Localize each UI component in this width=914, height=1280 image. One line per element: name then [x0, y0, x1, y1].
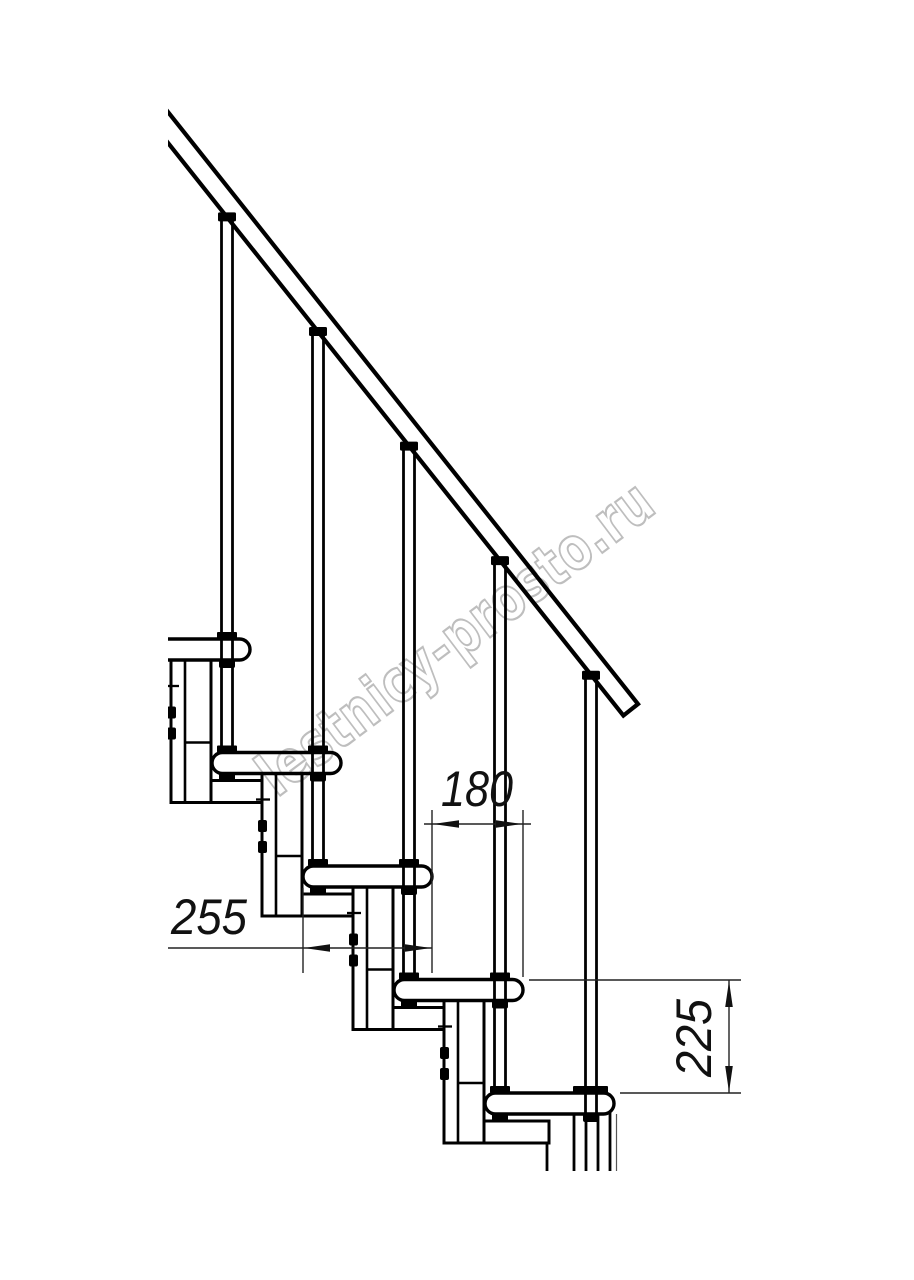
clamp-bolt: [349, 955, 358, 967]
tread-4: [394, 980, 523, 1001]
under-tread-nut: [310, 886, 326, 895]
tread-3: [303, 866, 432, 887]
clamp-bolt: [440, 1068, 449, 1080]
under-tread-nut: [492, 1113, 508, 1122]
baluster-foot-collar: [399, 973, 419, 980]
dimension-label-180: 180: [441, 761, 513, 817]
baluster-collar-wide: [573, 1086, 608, 1093]
baluster-collar: [490, 973, 510, 980]
under-tread-nut: [401, 1000, 417, 1009]
dimension-label-255: 255: [170, 889, 247, 945]
clamp-bolt: [440, 1047, 449, 1059]
baluster-collar: [217, 632, 237, 639]
tread-5: [485, 1093, 614, 1114]
under-tread-nut: [219, 773, 235, 782]
module-column: [353, 887, 393, 1030]
clamp-bolt: [167, 728, 176, 740]
clamp-bolt: [167, 707, 176, 719]
dimension-label-225: 225: [666, 999, 722, 1078]
module-column: [171, 660, 211, 803]
baluster-foot-collar: [490, 1086, 510, 1093]
baluster-foot-collar: [217, 746, 237, 753]
clamp-bolt: [258, 820, 267, 832]
baluster-collar: [399, 859, 419, 866]
staircase-technical-drawing: 180 255 225 lestnicy-prosto.ru: [0, 0, 914, 1280]
clamp-bolt: [258, 841, 267, 853]
module-column: [444, 1001, 484, 1144]
drawing-page: 180 255 225 lestnicy-prosto.ru: [0, 0, 914, 1280]
clamp-bolt: [349, 934, 358, 946]
baluster-foot-collar: [308, 859, 328, 866]
